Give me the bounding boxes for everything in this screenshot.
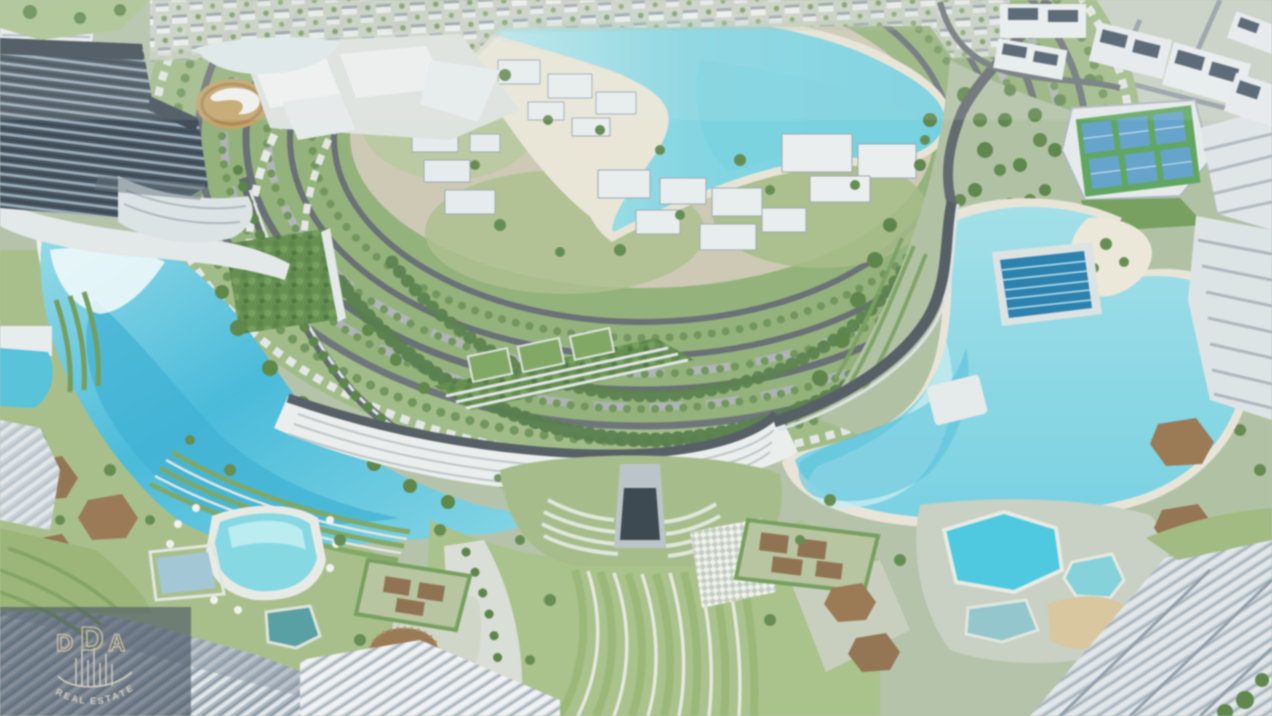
svg-text:D: D	[56, 630, 73, 657]
svg-text:E: E	[90, 696, 96, 706]
svg-text:D: D	[80, 620, 104, 657]
svg-text:A: A	[108, 630, 125, 657]
svg-text:S: S	[97, 696, 104, 706]
